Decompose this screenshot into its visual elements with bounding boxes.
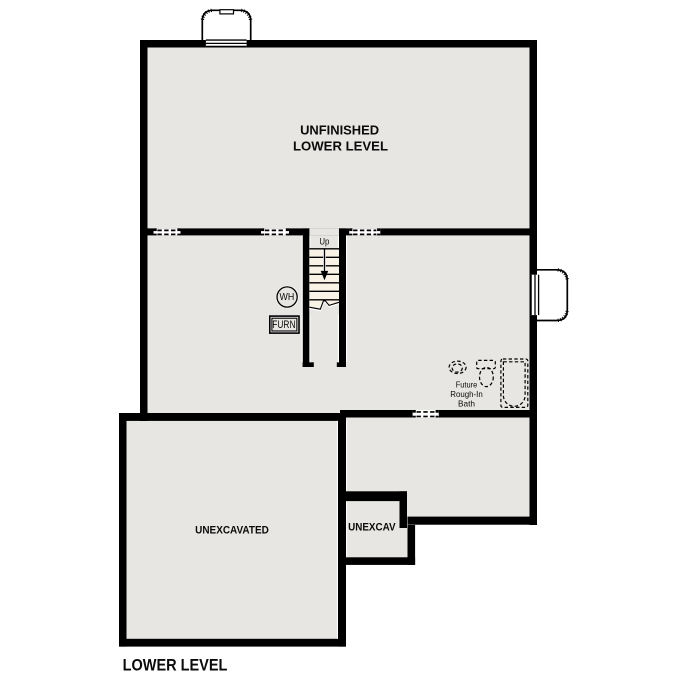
svg-text:Future: Future [456, 379, 478, 389]
svg-text:FURN: FURN [272, 319, 295, 331]
svg-text:WH: WH [280, 292, 295, 303]
svg-text:Up: Up [319, 237, 329, 247]
svg-text:LOWER LEVEL: LOWER LEVEL [293, 139, 388, 154]
svg-text:LOWER LEVEL: LOWER LEVEL [123, 655, 228, 674]
svg-text:Rough-In: Rough-In [450, 389, 483, 399]
svg-text:UNEXCAVATED: UNEXCAVATED [195, 524, 269, 536]
svg-text:UNEXCAV: UNEXCAV [348, 522, 396, 534]
svg-text:UNFINISHED: UNFINISHED [300, 123, 379, 138]
svg-text:Bath: Bath [458, 399, 475, 409]
